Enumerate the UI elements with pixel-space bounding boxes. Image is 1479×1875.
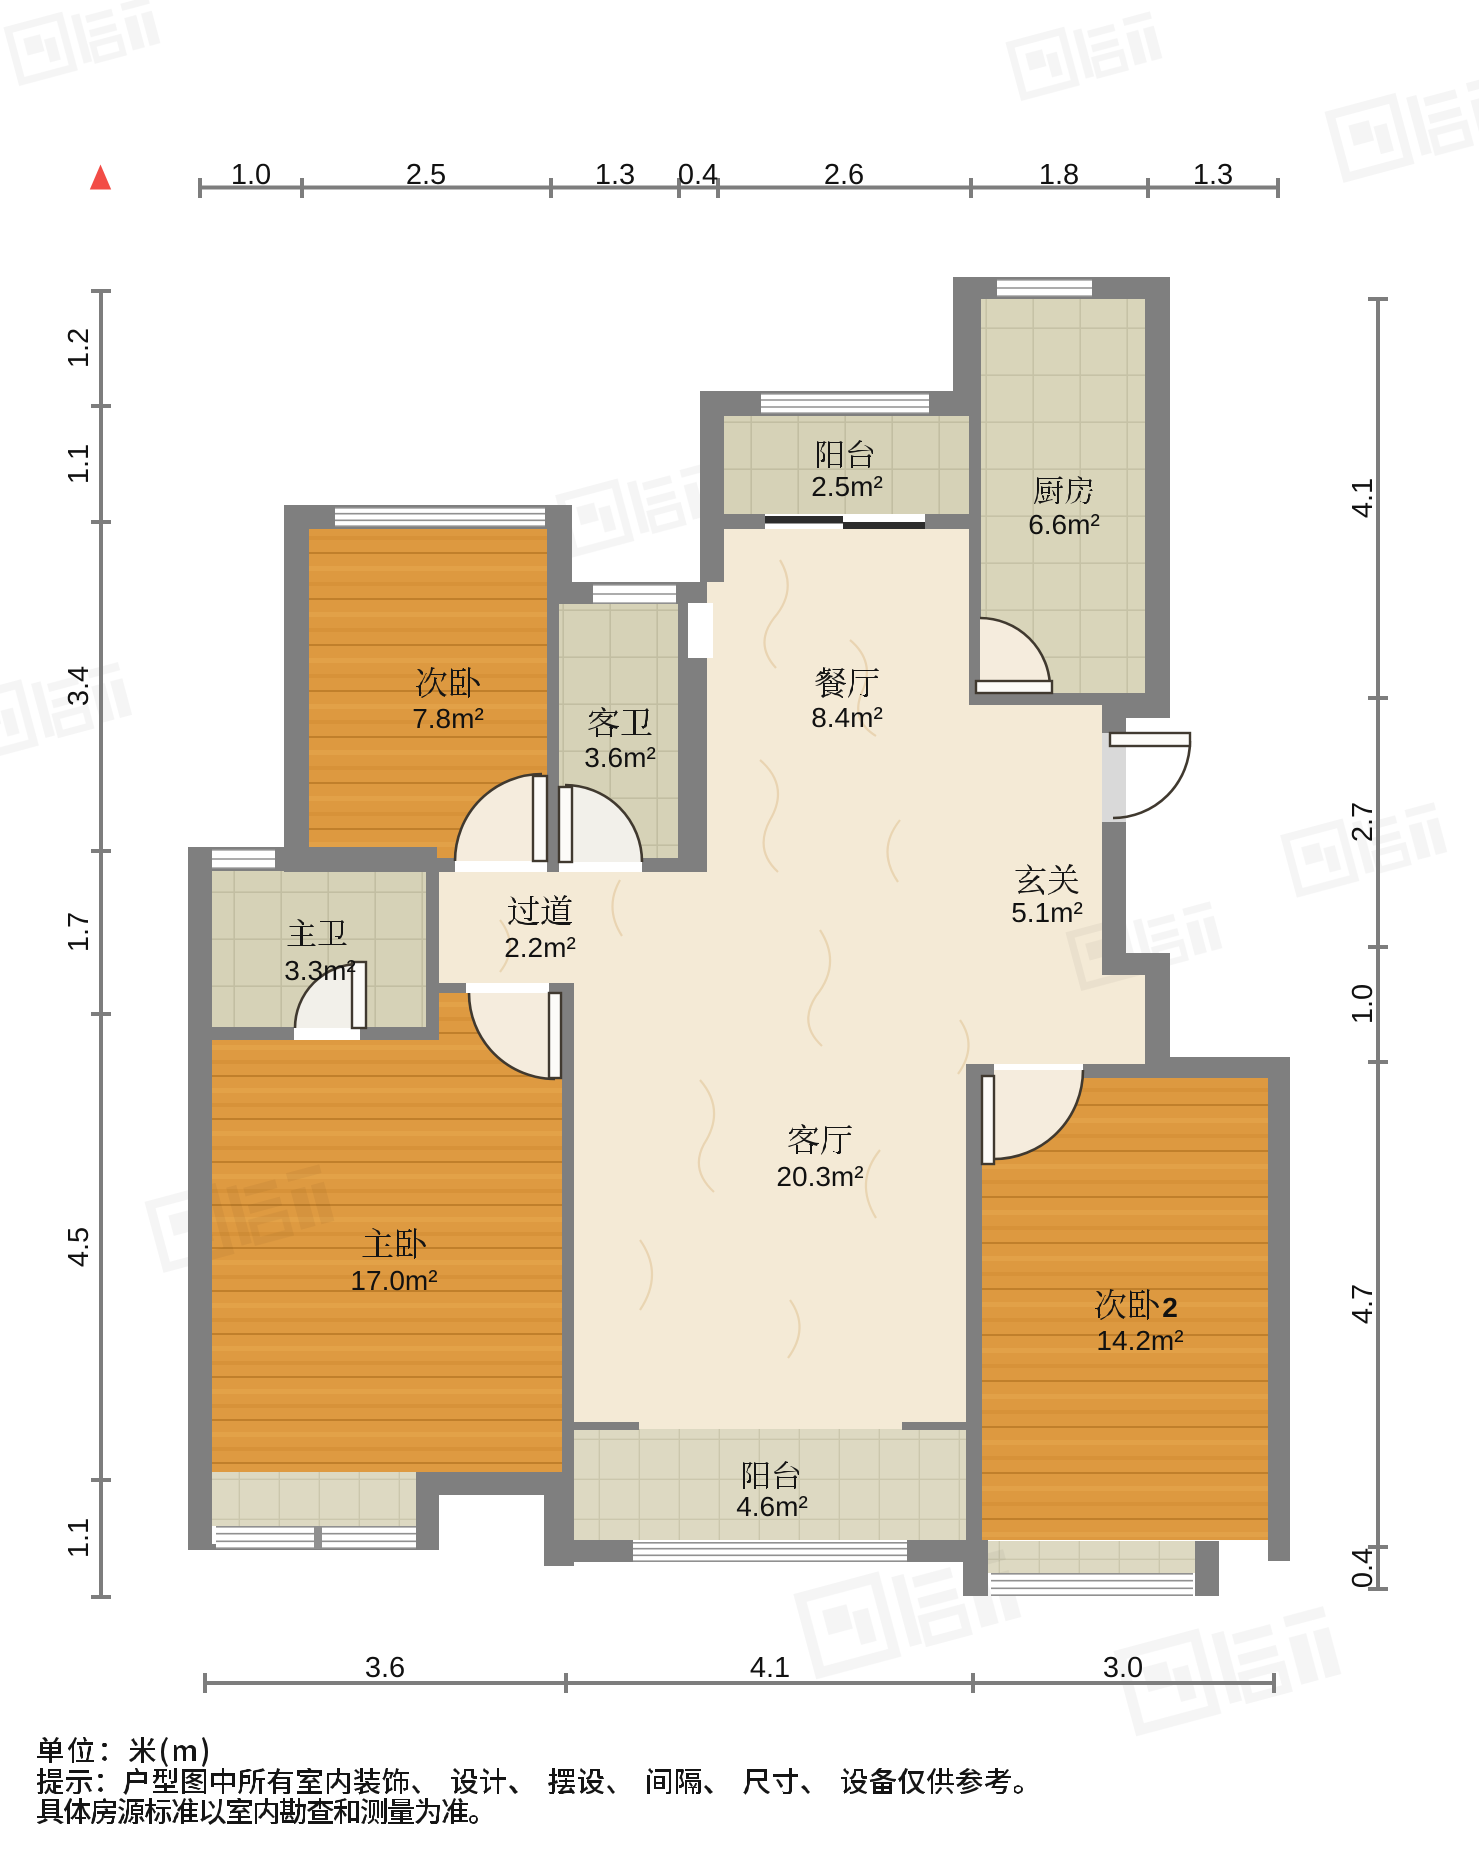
- svg-text:1.2: 1.2: [63, 328, 95, 368]
- svg-text:1.1: 1.1: [63, 444, 95, 484]
- svg-text:0.4: 0.4: [1347, 1548, 1379, 1588]
- svg-text:5.1m²: 5.1m²: [1011, 897, 1083, 928]
- svg-text:2.7: 2.7: [1347, 802, 1379, 842]
- svg-text:3.6m²: 3.6m²: [584, 742, 656, 773]
- svg-text:2.6: 2.6: [824, 159, 864, 191]
- svg-text:3.6: 3.6: [365, 1652, 405, 1684]
- svg-text:1.3: 1.3: [595, 159, 635, 191]
- svg-text:1.3: 1.3: [1193, 159, 1233, 191]
- svg-text:1.0: 1.0: [231, 159, 271, 191]
- svg-text:20.3m²: 20.3m²: [776, 1161, 863, 1192]
- svg-text:3.4: 3.4: [63, 666, 95, 706]
- svg-text:17.0m²: 17.0m²: [350, 1265, 437, 1296]
- svg-text:2.2m²: 2.2m²: [504, 932, 576, 963]
- svg-text:4.7: 4.7: [1347, 1284, 1379, 1324]
- svg-text:7.8m²: 7.8m²: [412, 703, 484, 734]
- svg-text:14.2m²: 14.2m²: [1096, 1325, 1183, 1356]
- svg-text:1.7: 1.7: [63, 912, 95, 952]
- svg-text:4.1: 4.1: [1347, 478, 1379, 518]
- svg-text:2.5: 2.5: [406, 159, 446, 191]
- svg-text:3.3m²: 3.3m²: [284, 955, 356, 986]
- svg-text:4.6m²: 4.6m²: [736, 1491, 808, 1522]
- svg-text:8.4m²: 8.4m²: [811, 702, 883, 733]
- svg-text:1.1: 1.1: [63, 1518, 95, 1558]
- svg-text:4.1: 4.1: [750, 1652, 790, 1684]
- svg-text:2.5m²: 2.5m²: [811, 471, 883, 502]
- svg-text:6.6m²: 6.6m²: [1028, 509, 1100, 540]
- svg-text:4.5: 4.5: [63, 1227, 95, 1267]
- svg-text:3.0: 3.0: [1103, 1652, 1143, 1684]
- svg-text:0.4: 0.4: [678, 159, 718, 191]
- svg-text:2: 2: [1162, 1292, 1178, 1323]
- svg-text:1.0: 1.0: [1347, 984, 1379, 1024]
- svg-text:1.8: 1.8: [1039, 159, 1079, 191]
